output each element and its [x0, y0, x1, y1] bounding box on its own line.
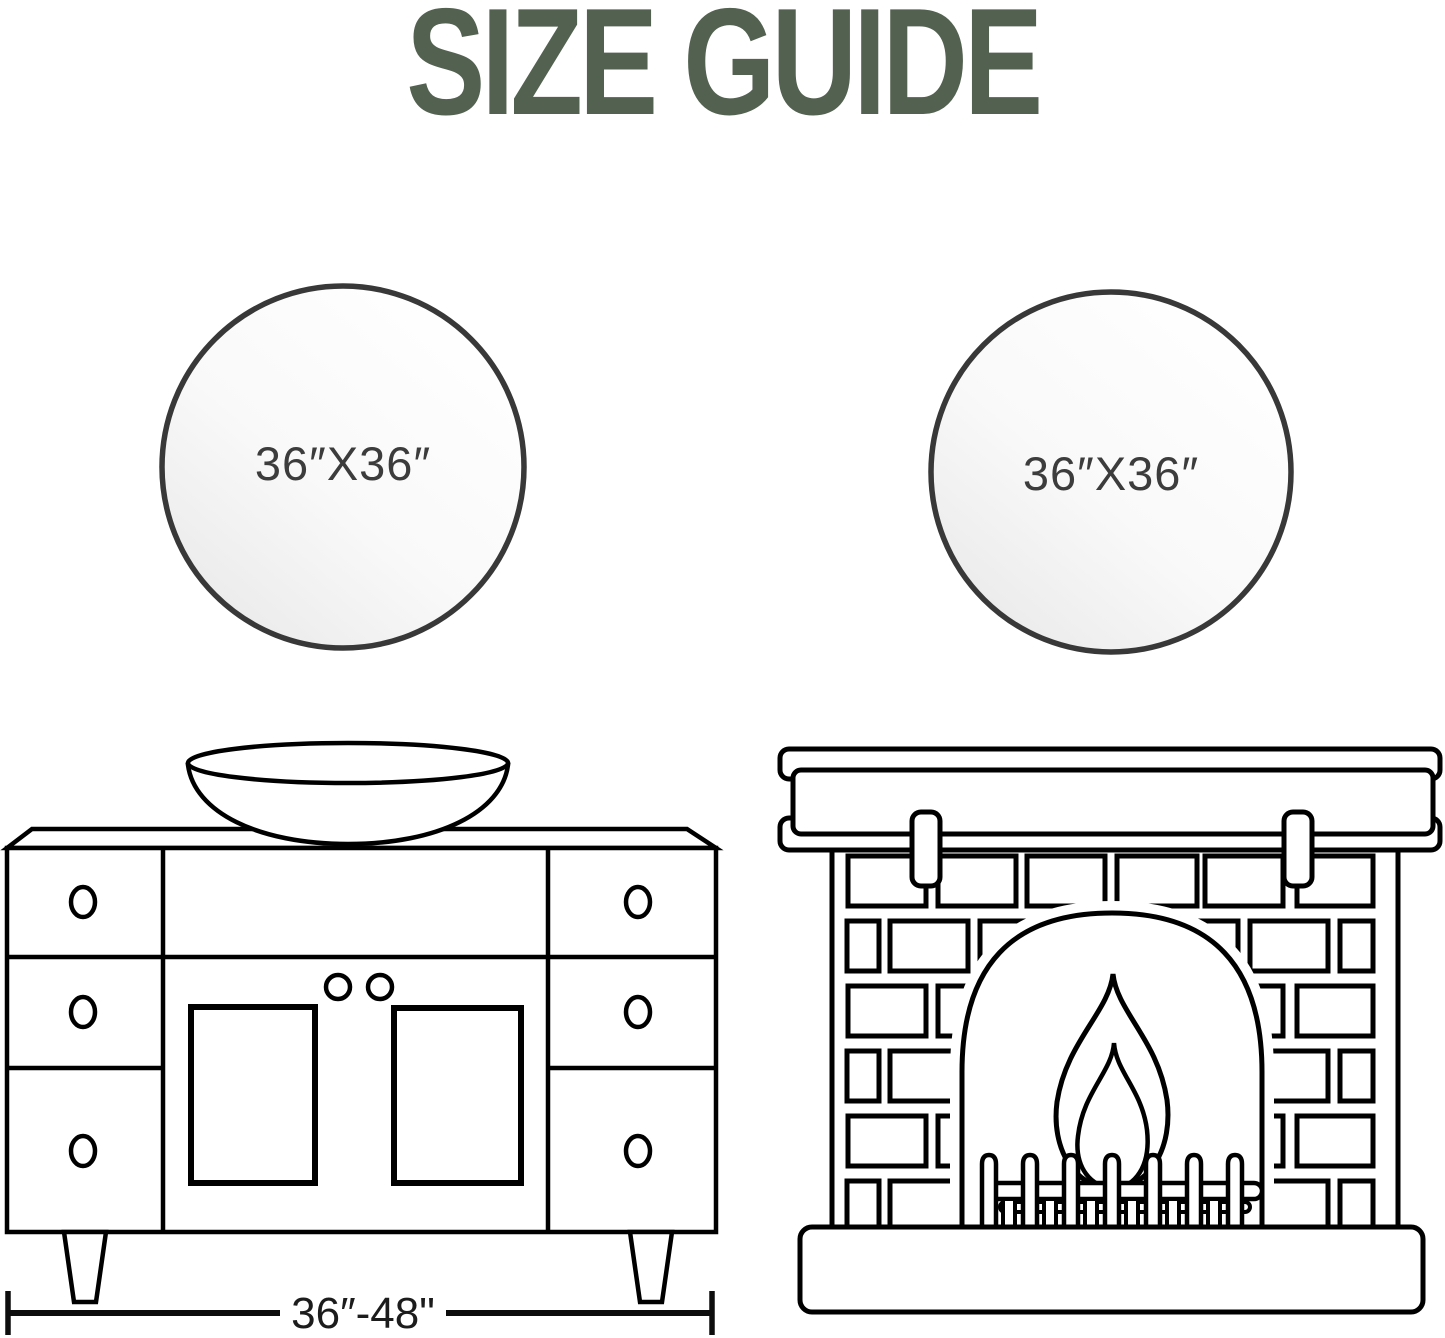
drawer-knob	[71, 887, 95, 917]
page-title-text: SIZE GUIDE	[406, 0, 1039, 138]
fireplace-mantel	[780, 749, 1440, 886]
size-guide-drawing	[0, 0, 1445, 1338]
mirror-left-size-label: 36″X36″	[183, 433, 503, 493]
drawer-knob	[71, 1136, 95, 1166]
drawer-knob	[71, 997, 95, 1027]
page-title: SIZE GUIDE	[0, 0, 1445, 130]
mantel-corbel	[1284, 812, 1312, 886]
fireplace-icon	[780, 749, 1440, 1312]
drawer-knob	[626, 1136, 650, 1166]
vanity-cabinet-icon	[7, 848, 716, 1232]
vanity-door-left	[191, 1007, 315, 1183]
mantel-corbel	[912, 812, 940, 886]
door-knob	[368, 975, 392, 999]
fireplace-hearth	[800, 1227, 1423, 1312]
vanity-drawing	[7, 743, 716, 1302]
vanity-door-right	[394, 1008, 521, 1183]
door-knob	[326, 975, 350, 999]
mirror-right-size-label: 36″X36″	[951, 443, 1271, 503]
vanity-width-dimension-label: 36″-48"	[263, 1288, 463, 1338]
drawer-knob	[626, 887, 650, 917]
size-guide-page: SIZE GUIDE 36″X36″ 36″X36″ 36″-48"	[0, 0, 1445, 1338]
drawer-knob	[626, 997, 650, 1027]
